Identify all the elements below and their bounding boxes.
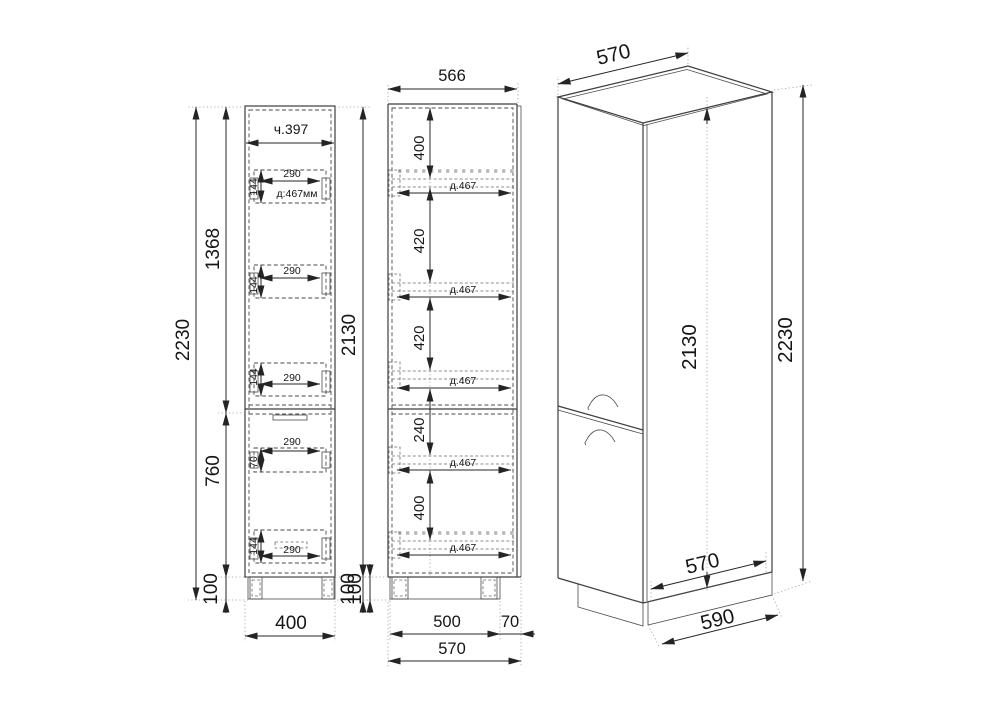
iso-plinth-front bbox=[578, 584, 643, 626]
dim-shelf5-depth: д.467 bbox=[450, 542, 477, 554]
handle1-depth-note: д:467мм bbox=[276, 188, 317, 200]
dim-front-upper-height: 1368 bbox=[203, 228, 224, 270]
dim-handle2-height: 144 bbox=[248, 276, 260, 294]
technical-drawing-page: 290 144 д:467мм 290 144 290 144 bbox=[0, 0, 1000, 707]
dim-iso-carcass-height: 2130 bbox=[678, 324, 701, 370]
dim-gap-1: 400 bbox=[411, 135, 428, 160]
dim-shelf4-depth: д.467 bbox=[450, 457, 477, 469]
side-shelf-5: д.467 bbox=[389, 532, 514, 558]
dim-handle4-width: 290 bbox=[283, 436, 301, 448]
dim-side-total-depth: 570 bbox=[438, 640, 466, 658]
front-handle-2: 290 144 bbox=[248, 265, 330, 298]
dim-gap-5: 400 bbox=[411, 495, 428, 520]
dim-shelf3-depth: д.467 bbox=[450, 375, 477, 387]
dim-side-plinth: 100 bbox=[345, 573, 366, 605]
dim-iso-plinth-depth: 590 bbox=[698, 605, 737, 635]
iso-view: 570 2130 2230 570 590 bbox=[558, 40, 812, 648]
side-plinth bbox=[390, 577, 500, 599]
dim-front-width: 400 bbox=[275, 613, 307, 634]
front-handle-1: 290 144 д:467мм bbox=[248, 168, 330, 203]
dim-iso-total-height: 2230 bbox=[774, 317, 797, 363]
dim-handle1-width: 290 bbox=[283, 168, 301, 180]
iso-bottom-depth-dim: 570 bbox=[651, 549, 766, 601]
dim-gap-2: 420 bbox=[411, 228, 428, 253]
dim-side-door-offset: 70 bbox=[501, 613, 519, 631]
dim-front-total-height: 2230 bbox=[173, 319, 194, 361]
dim-shelf1-depth: д.467 bbox=[450, 180, 477, 192]
front-handle-4: 290 70 bbox=[248, 436, 330, 472]
dim-shelf2-depth: д.467 bbox=[450, 284, 477, 296]
iso-total-height-dim: 2230 bbox=[774, 85, 812, 594]
dim-handle2-width: 290 bbox=[283, 265, 301, 277]
side-top-dim: 566 bbox=[388, 67, 518, 103]
front-vent-slot bbox=[273, 415, 307, 420]
front-plinth bbox=[248, 577, 335, 599]
front-bottom-dim: 400 bbox=[245, 601, 335, 642]
dim-handle5-width: 290 bbox=[283, 544, 301, 556]
front-left-dims: 2230 1368 760 100 bbox=[173, 107, 248, 613]
side-shelf-2: д.467 bbox=[389, 274, 514, 300]
side-shelf-3: д.467 bbox=[389, 362, 514, 388]
front-view: 290 144 д:467мм 290 144 290 144 bbox=[173, 106, 371, 642]
iso-plinth-depth-dim: 590 bbox=[648, 595, 782, 648]
front-handle-3: 290 144 bbox=[248, 363, 330, 396]
front-part-label: ч.397 bbox=[274, 121, 309, 137]
iso-door-split bbox=[558, 406, 643, 430]
front-right-dims: 2130 100 bbox=[335, 107, 371, 613]
dim-gap-4: 240 bbox=[411, 417, 428, 442]
dim-handle4-height: 70 bbox=[248, 456, 260, 468]
dim-iso-top-depth: 570 bbox=[594, 40, 633, 70]
dim-gap-3: 420 bbox=[411, 325, 428, 350]
dim-handle3-height: 144 bbox=[248, 368, 260, 386]
dim-front-lower-height: 760 bbox=[203, 455, 224, 487]
cabinet-drawing-canvas: 290 144 д:467мм 290 144 290 144 bbox=[0, 0, 1000, 707]
iso-upper-door-handle bbox=[588, 395, 618, 410]
side-shelf-1: д.467 bbox=[389, 170, 514, 196]
dim-handle1-height: 144 bbox=[248, 178, 260, 196]
iso-lower-door-handle bbox=[585, 430, 615, 445]
dim-front-plinth-left: 100 bbox=[201, 573, 222, 605]
side-shelf-4: д.467 bbox=[389, 447, 514, 473]
side-bottom-dims: 500 70 570 bbox=[388, 579, 535, 667]
side-plinth-dim: 100 bbox=[345, 564, 390, 613]
dim-front-carcass-height: 2130 bbox=[339, 314, 360, 356]
dim-side-body-depth: 500 bbox=[433, 613, 461, 631]
iso-top-dim: 570 bbox=[558, 40, 688, 95]
dim-iso-bottom-depth: 570 bbox=[683, 549, 722, 579]
dim-handle3-width: 290 bbox=[283, 372, 301, 384]
front-handle-5: 290 144 bbox=[248, 530, 330, 563]
iso-carcass-height-dim: 2130 bbox=[678, 97, 707, 591]
side-gap-dims: 400 420 420 240 400 bbox=[411, 108, 430, 540]
dim-side-top-width: 566 bbox=[438, 67, 466, 85]
side-view: д.467 д.467 д.467 д.467 bbox=[345, 67, 535, 667]
dim-handle5-height: 144 bbox=[248, 537, 260, 555]
